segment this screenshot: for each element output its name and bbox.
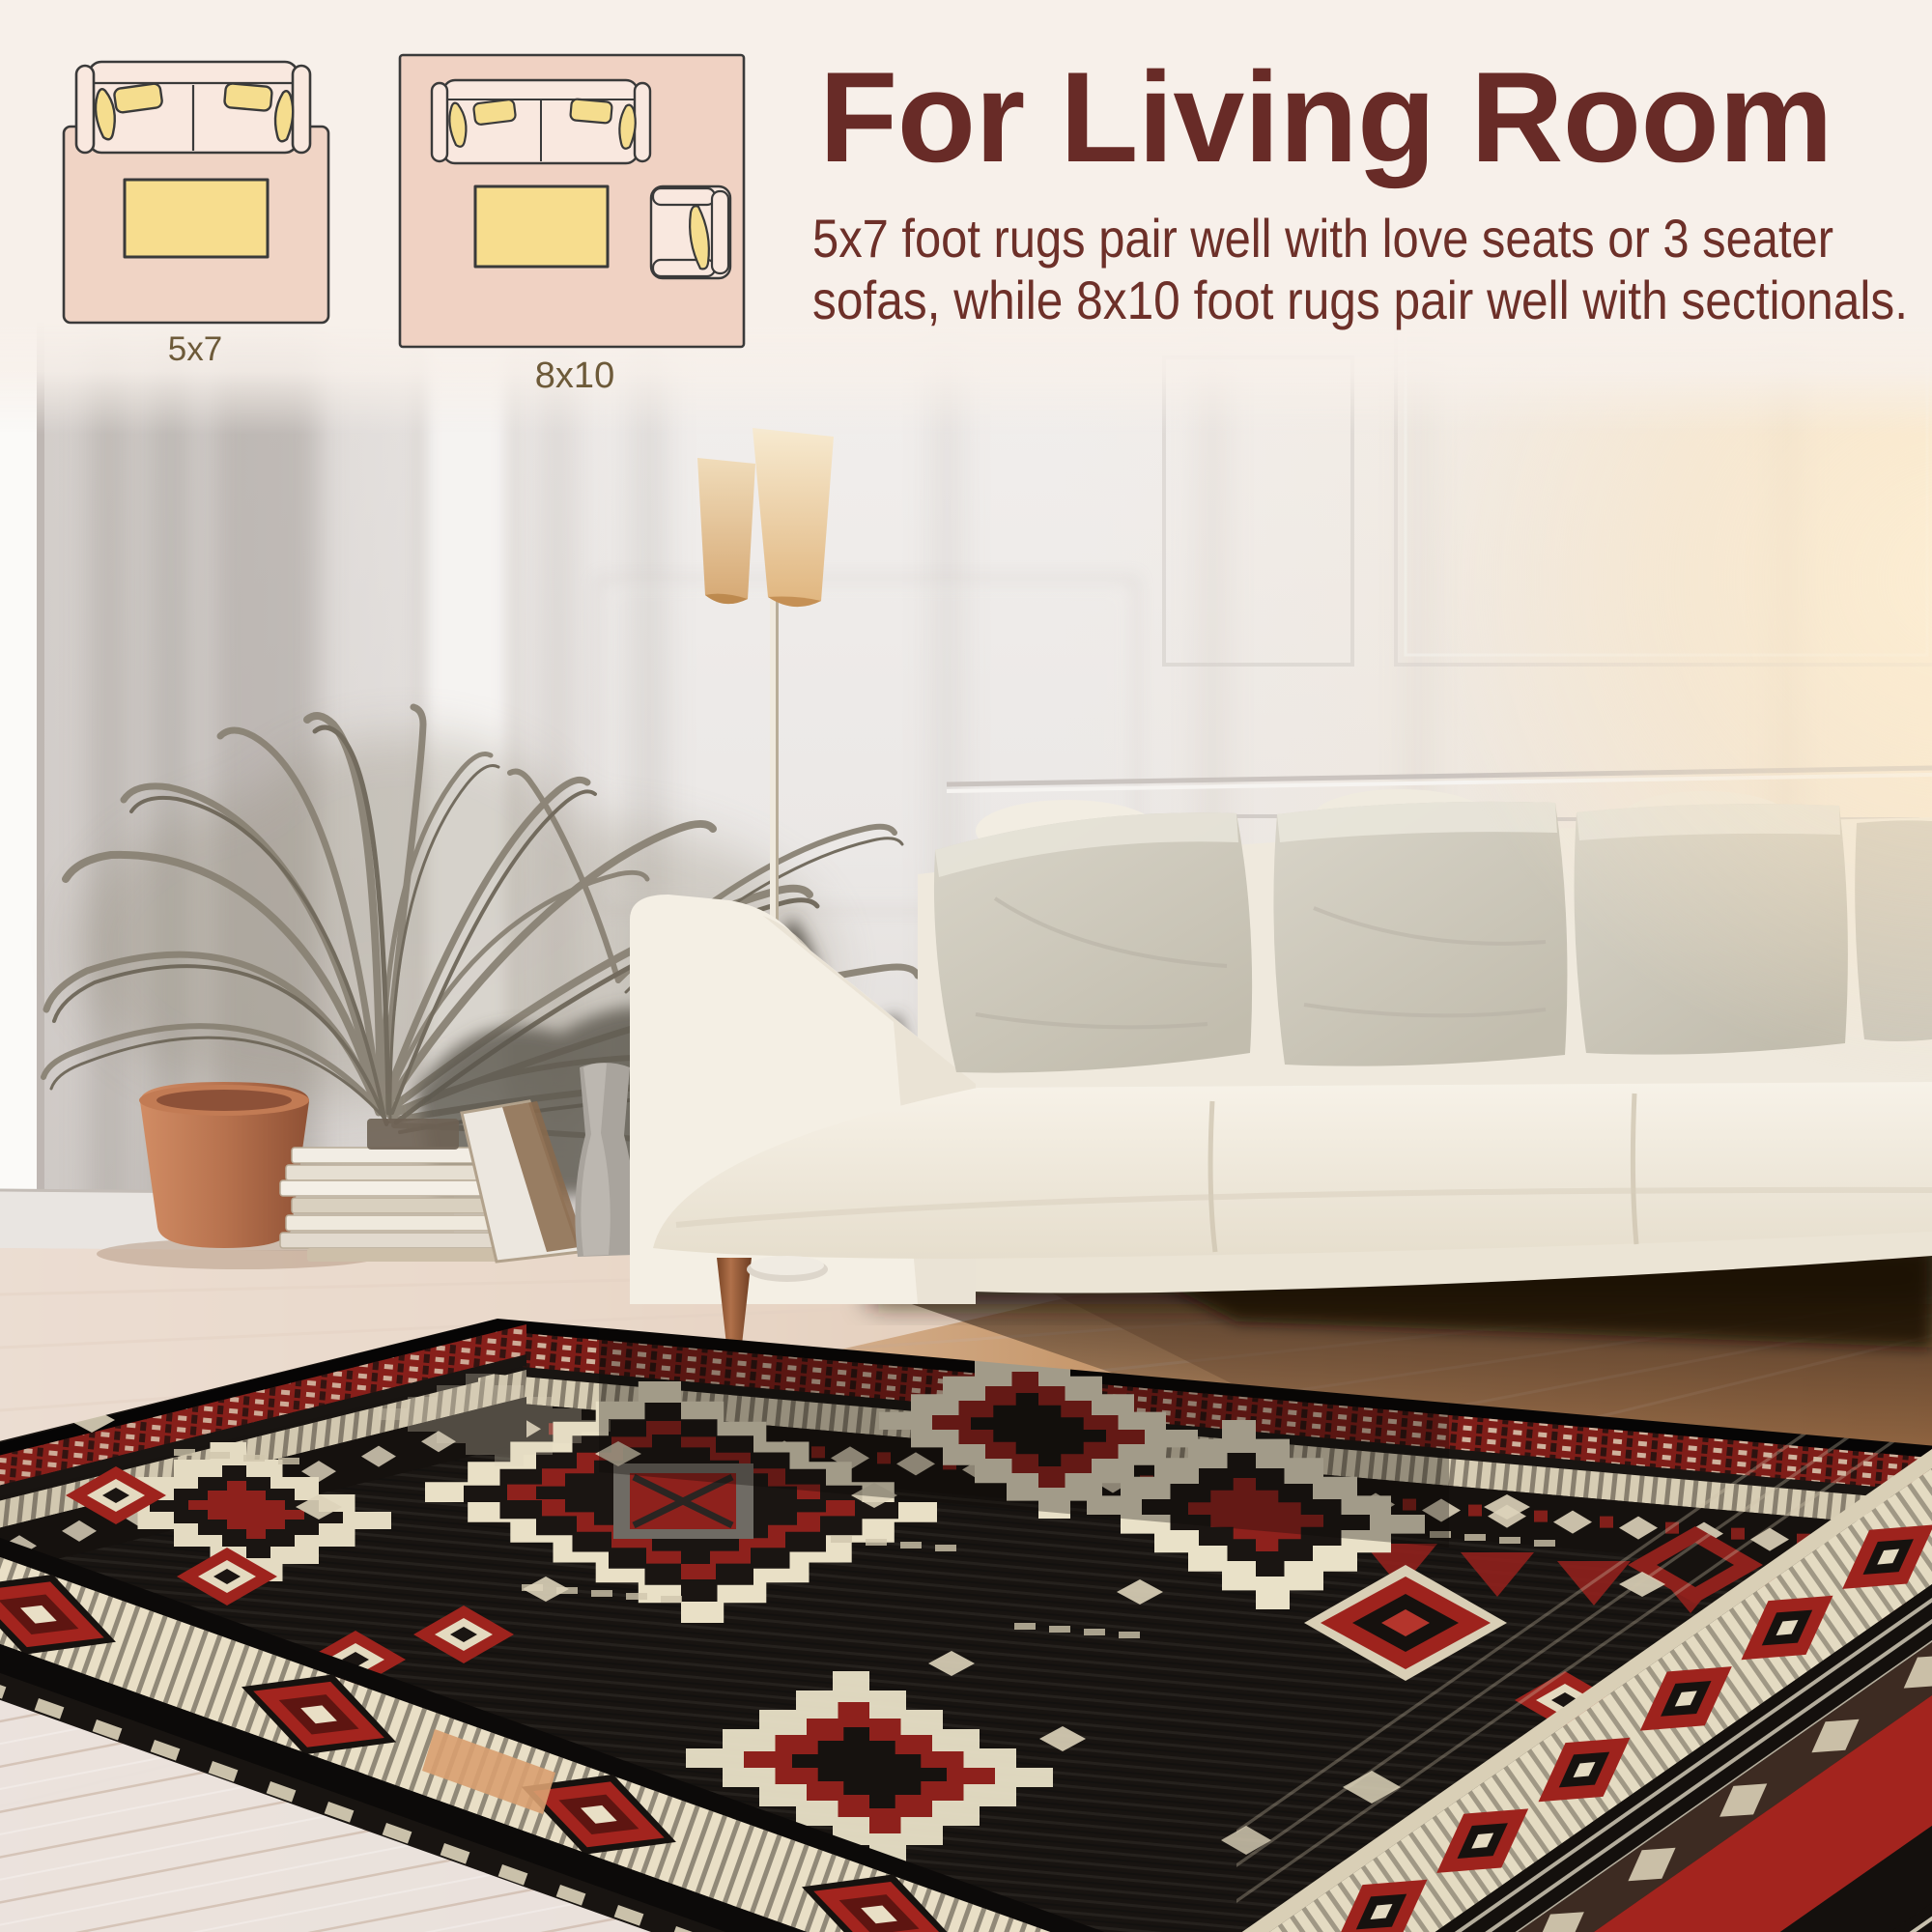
svg-text:5x7: 5x7: [168, 330, 222, 368]
svg-text:sofas, while 8x10 foot rugs pa: sofas, while 8x10 foot rugs pair well wi…: [812, 270, 1908, 330]
svg-text:5x7 foot rugs pair well with l: 5x7 foot rugs pair well with love seats …: [812, 208, 1833, 269]
svg-text:8x10: 8x10: [535, 355, 614, 396]
svg-text:For Living Room: For Living Room: [819, 46, 1833, 189]
